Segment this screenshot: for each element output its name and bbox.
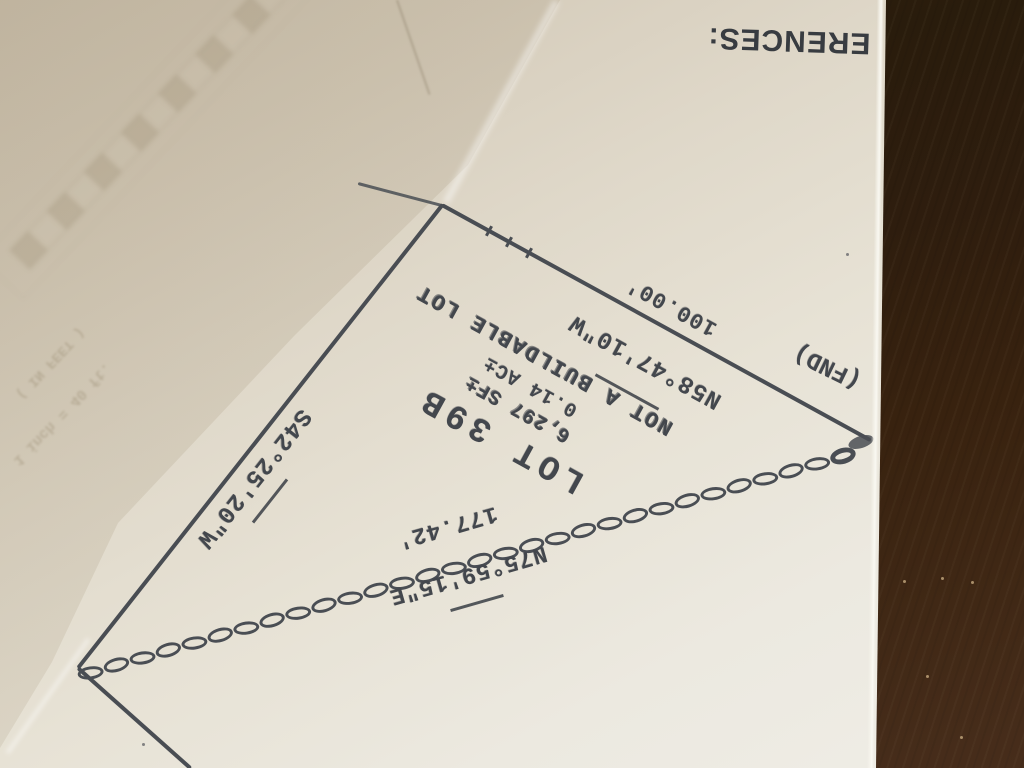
lot-stamp-block: LOT 39B 6,297 SF± 0.14 AC± NOT A BUILDAB… — [366, 279, 678, 525]
wood-speck — [926, 675, 929, 678]
wood-speck — [903, 580, 906, 583]
bearing-underline — [450, 594, 504, 612]
references-heading: ERENCES: — [707, 20, 871, 60]
wood-speck — [971, 581, 974, 584]
wood-speck — [941, 577, 944, 580]
boundary-line-continuation — [77, 667, 192, 768]
distance-label-south: 177.42' — [394, 500, 501, 554]
wood-speck — [960, 736, 963, 739]
ink-speck — [142, 743, 145, 746]
monument-found-label: (FND) — [790, 338, 867, 394]
survey-plan-sheet: ( IN FEET ) 1 inch = 40 ft. ERENCES: 100… — [0, 0, 1024, 768]
photo-scene: ( IN FEET ) 1 inch = 40 ft. ERENCES: 100… — [0, 0, 1024, 768]
ink-speck — [846, 253, 849, 256]
